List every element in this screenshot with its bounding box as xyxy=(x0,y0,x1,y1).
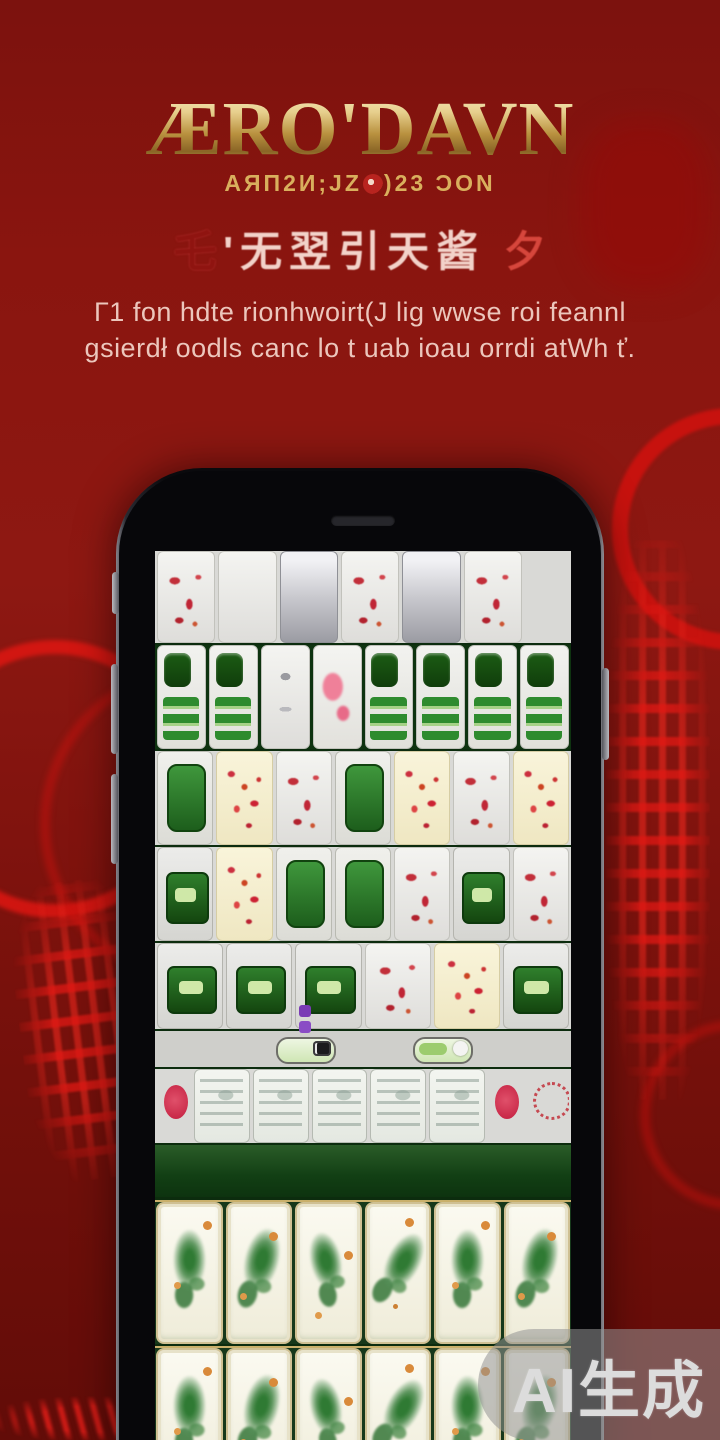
mahjong-tile[interactable] xyxy=(429,1069,485,1143)
mahjong-tile[interactable] xyxy=(280,551,338,643)
mahjong-tile[interactable] xyxy=(194,1069,250,1143)
mahjong-tile[interactable] xyxy=(226,943,292,1029)
mahjong-tile[interactable] xyxy=(157,943,223,1029)
mahjong-tile[interactable] xyxy=(365,943,431,1029)
calligraphy-text: '无翌引天酱 xyxy=(223,228,485,275)
mahjong-tile[interactable] xyxy=(157,1069,191,1143)
game-screen xyxy=(155,551,571,1440)
mahjong-tile[interactable] xyxy=(513,847,569,941)
title-subtitle: AЯΠ2И;JZ)23 ƆON xyxy=(0,170,720,197)
mahjong-board xyxy=(155,551,571,1440)
tagline-line2: gsierdł oodls canc lo t uab ioau orrdi a… xyxy=(0,333,720,364)
subtitle-right: )23 ƆON xyxy=(384,170,496,196)
mahjong-tile[interactable] xyxy=(402,551,460,643)
mahjong-tile[interactable] xyxy=(261,645,310,749)
tile-row xyxy=(155,645,571,749)
rack-tile[interactable] xyxy=(156,1202,223,1344)
right-calligraphy-ornament xyxy=(606,540,710,1100)
rack-tile[interactable] xyxy=(295,1202,362,1344)
game-title: ÆRO'DAVN xyxy=(0,86,720,173)
toggle-row xyxy=(155,1031,571,1067)
rack-tile[interactable] xyxy=(226,1348,293,1440)
tile-row xyxy=(155,551,571,643)
mahjong-tile[interactable] xyxy=(216,751,272,845)
volume-down-button xyxy=(111,774,118,864)
red-calligraphy-line: 乇'无翌引天酱 夕 xyxy=(0,218,720,279)
purple-marker xyxy=(299,1005,311,1017)
mahjong-tile[interactable] xyxy=(218,551,276,643)
mahjong-tile[interactable] xyxy=(488,1069,522,1143)
tile-row xyxy=(155,1069,571,1143)
mahjong-tile[interactable] xyxy=(453,847,509,941)
mahjong-tile[interactable] xyxy=(525,1069,569,1143)
rack-tile[interactable] xyxy=(365,1348,432,1440)
mahjong-tile[interactable] xyxy=(157,551,215,643)
mute-switch xyxy=(112,572,119,614)
mahjong-tile[interactable] xyxy=(209,645,258,749)
rack-tile[interactable] xyxy=(365,1202,432,1344)
mahjong-tile[interactable] xyxy=(520,645,569,749)
mahjong-tile[interactable] xyxy=(341,551,399,643)
tile-row xyxy=(155,751,571,845)
mahjong-tile[interactable] xyxy=(276,847,332,941)
toggle-pill-left[interactable] xyxy=(276,1037,336,1064)
speaker-slit xyxy=(331,515,395,526)
rack-tile[interactable] xyxy=(226,1202,293,1344)
mahjong-tile[interactable] xyxy=(335,751,391,845)
toggle-pill-right[interactable] xyxy=(413,1037,473,1064)
poster-background: ÆRO'DAVN AЯΠ2И;JZ)23 ƆON 乇'无翌引天酱 夕 Γ1 fo… xyxy=(0,0,720,1440)
mahjong-tile[interactable] xyxy=(365,645,414,749)
mahjong-tile[interactable] xyxy=(394,847,450,941)
mahjong-tile[interactable] xyxy=(157,645,206,749)
mahjong-tile[interactable] xyxy=(513,751,569,845)
rack-tile[interactable] xyxy=(156,1348,223,1440)
mahjong-tile[interactable] xyxy=(312,1069,368,1143)
tagline-line1: Γ1 fon hdte rionhwoirt(J lig wwse roi fe… xyxy=(0,297,720,328)
mahjong-tile[interactable] xyxy=(253,1069,309,1143)
rack-tile[interactable] xyxy=(434,1202,501,1344)
mahjong-tile[interactable] xyxy=(453,751,509,845)
mahjong-tile[interactable] xyxy=(370,1069,426,1143)
mahjong-tile[interactable] xyxy=(157,847,213,941)
mahjong-tile[interactable] xyxy=(276,751,332,845)
red-seal-icon xyxy=(363,174,383,194)
subtitle-left: AЯΠ2И;JZ xyxy=(224,170,362,196)
mahjong-tile[interactable] xyxy=(216,847,272,941)
rack-tile[interactable] xyxy=(295,1348,362,1440)
right-ring-ornament xyxy=(612,408,720,650)
mahjong-tile[interactable] xyxy=(416,645,465,749)
calligraphy-flourish-icon: 夕 xyxy=(504,228,546,275)
volume-up-button xyxy=(111,664,118,754)
tile-row xyxy=(155,943,571,1029)
mahjong-tile[interactable] xyxy=(313,645,362,749)
ai-watermark-badge: AI生成 xyxy=(478,1329,720,1440)
mahjong-tile[interactable] xyxy=(394,751,450,845)
felt-band xyxy=(155,1145,571,1197)
tile-row xyxy=(155,847,571,941)
right-ring-ornament-2 xyxy=(640,1020,720,1210)
mahjong-tile[interactable] xyxy=(335,847,391,941)
rack-tile[interactable] xyxy=(504,1202,571,1344)
ai-watermark-label: AI生成 xyxy=(478,1340,706,1430)
calligraphy-lead: 乇 xyxy=(174,228,223,275)
power-button xyxy=(602,668,609,760)
phone-mockup xyxy=(116,468,604,1440)
mahjong-tile[interactable] xyxy=(434,943,500,1029)
phone-bezel xyxy=(119,471,601,1440)
board-gap xyxy=(525,551,569,643)
mahjong-tile[interactable] xyxy=(503,943,569,1029)
mahjong-tile[interactable] xyxy=(464,551,522,643)
mahjong-tile[interactable] xyxy=(468,645,517,749)
mahjong-tile[interactable] xyxy=(157,751,213,845)
rack-row xyxy=(155,1200,571,1344)
